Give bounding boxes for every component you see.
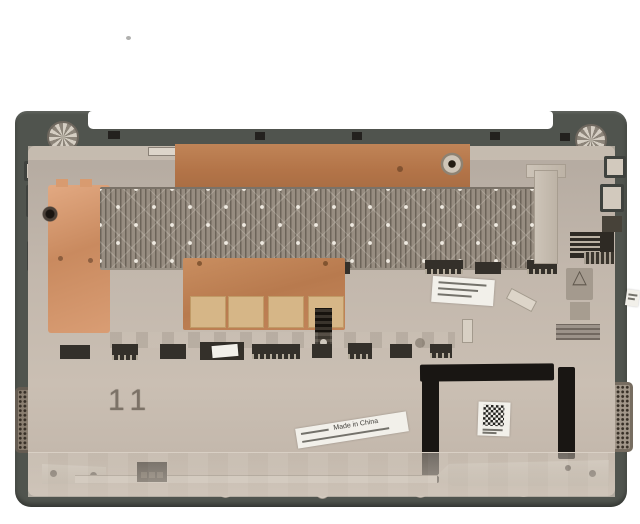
storage-bay-bracket-top — [420, 363, 554, 381]
connector-block — [312, 344, 332, 358]
spec-sticker — [431, 276, 495, 306]
front-lip-band — [28, 452, 615, 497]
molded-dot — [415, 338, 425, 348]
connector-block — [60, 345, 90, 359]
pin-comb — [584, 252, 614, 264]
edge-sticker — [625, 289, 640, 307]
thermal-pad — [190, 296, 226, 328]
connector-block — [430, 344, 452, 358]
mold-number: 11 — [108, 384, 153, 418]
rear-port-cutout — [604, 156, 626, 178]
thermal-pad — [228, 296, 264, 328]
shield-tab — [56, 179, 68, 187]
shield-tab — [80, 179, 92, 187]
molded-slot — [462, 319, 473, 343]
connector-block — [200, 342, 244, 360]
storage-bay-bracket-right-leg — [558, 367, 575, 459]
shield-hole — [58, 256, 63, 261]
screw-grommet-black — [41, 205, 59, 223]
molded-mark-patch — [570, 302, 590, 320]
recycle-mark-patch: △ — [566, 268, 593, 300]
product-photo: △ — [0, 0, 640, 524]
copper-foil-strip — [175, 144, 470, 189]
recycle-triangle-icon: △ — [572, 267, 587, 288]
sticker-text-line — [438, 287, 478, 292]
connector-pins — [570, 236, 600, 253]
sticker-text-line — [482, 432, 496, 434]
rim-clip — [255, 132, 265, 140]
top-edge-notch — [88, 111, 553, 129]
rim-clip — [352, 132, 362, 140]
shield-hole — [88, 258, 93, 263]
sticker-text-line — [438, 293, 472, 297]
connector-block — [425, 260, 463, 274]
connector-block — [348, 343, 372, 359]
dust-speck — [126, 36, 131, 40]
connector-block — [475, 262, 501, 274]
screw-center — [586, 135, 596, 145]
center-screw-grommet — [439, 151, 465, 177]
molded-slot — [506, 288, 537, 312]
rear-port-cutout — [600, 184, 624, 212]
foil-hole — [397, 166, 403, 172]
rim-clip — [490, 132, 500, 140]
sticker-text-line — [438, 281, 486, 286]
origin-sticker: Made in China — [295, 411, 409, 448]
sticker-text-line — [301, 429, 329, 435]
connector-block — [252, 344, 300, 359]
sticker-text-line — [628, 293, 637, 296]
sticker-text-line — [628, 297, 635, 299]
tiny-sticker — [212, 344, 239, 358]
screw-center — [58, 132, 68, 142]
qr-sticker — [477, 401, 510, 436]
case-inner-surface: △ — [28, 146, 615, 496]
rim-clip — [560, 133, 570, 141]
shield-hole — [323, 261, 328, 266]
molded-channel — [534, 170, 558, 264]
connector-block — [112, 344, 138, 360]
laptop-bottom-case: △ — [15, 111, 627, 507]
connector-block — [390, 344, 412, 358]
rim-clip — [108, 131, 120, 139]
shield-hole — [197, 261, 202, 266]
connector-block — [160, 344, 186, 359]
molded-text-patch — [556, 324, 600, 340]
qr-code — [483, 405, 505, 427]
edge-clip — [602, 216, 622, 232]
thermal-pad — [268, 296, 304, 328]
